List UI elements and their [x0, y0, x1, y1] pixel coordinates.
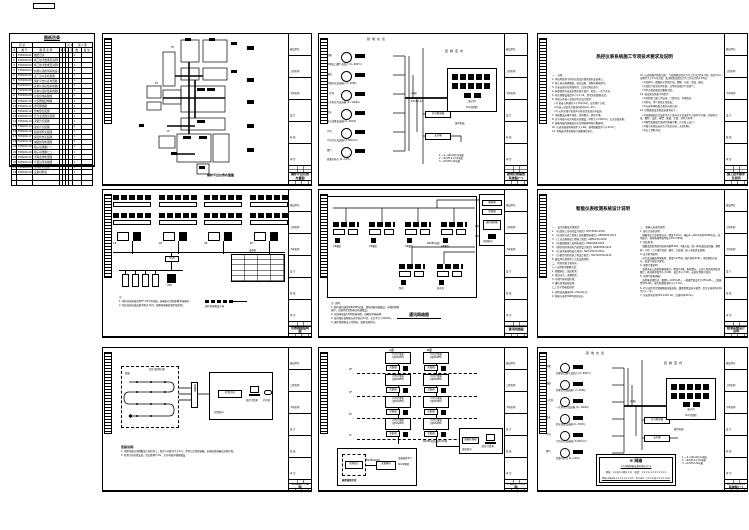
spec1-col2: 12. 仪表管路严密性试验：气动管路试验压力为工作压力的1.5倍，保压5min压… [640, 74, 722, 133]
titleblock-section: 工程名称 [289, 370, 311, 392]
spec-line: (1) 管道公称通径小于76mm时，应采用扩大管； [552, 102, 634, 105]
meter-line-2: (带RS485) [424, 400, 448, 403]
meter-bar [437, 264, 463, 269]
module-frame [204, 220, 242, 225]
instrument-location: 给水 [327, 111, 339, 114]
titleblock-sections: 建设单位工程名称子项名称设 计校 核审 定 [505, 190, 527, 322]
meter-bar [399, 264, 425, 269]
meter-cluster[interactable]: 1#罐区 [331, 222, 361, 252]
isolator-box[interactable]: 信号隔离器 [425, 111, 451, 118]
spare-label: 备用电缆 [674, 428, 684, 431]
titleblock-footer [289, 489, 311, 490]
cabinet-chip-1 [683, 402, 690, 407]
table-row[interactable] [12, 180, 93, 185]
titleblock-footer [289, 334, 311, 336]
hub-box[interactable]: HUB [165, 256, 179, 262]
sheet-catalog[interactable]: 图纸目录 目 录 共 1 册 第 1 册 序图 号图 纸 名 称幅版页张数备 注 [9, 33, 95, 167]
instrument-location: 给水 [546, 416, 558, 419]
meter-box [437, 271, 449, 277]
titleblock-section: 子项名称 [289, 234, 311, 256]
titleblock-section: 工程名称 [289, 56, 311, 78]
spec-line: 2. 智能仪表带HART通讯协议。 [552, 295, 634, 298]
barrier-box[interactable]: 安全栅 [425, 133, 451, 140]
titleblock-section: 审 定 [505, 144, 527, 166]
instrument-item[interactable]: 炉膛 炉膛出口烟气温度计 (0~600℃) [327, 50, 403, 69]
instrument-item[interactable]: 汽包 汽包水位变送器 (±300mm) [327, 126, 403, 145]
titleblock-section: 设 计 [505, 100, 527, 122]
row-name: 锅炉平台仪表布置图 [33, 78, 60, 83]
meter-group[interactable]: 户用计量表 (带RS485) 采集器 [385, 352, 411, 373]
node-chip [443, 238, 448, 243]
clusters-top: 1#罐区 2#罐区 3#罐区 [331, 222, 475, 252]
title-block: 建设单位工程名称子项名称设 计校 核审 定 通讯网络图 [504, 190, 527, 336]
meter-box [399, 271, 411, 277]
cabinet-label: 端子排 [667, 408, 715, 411]
panel-box-1: 隔离栅 [482, 200, 502, 206]
titleblock-section-label: 审 定 [506, 314, 512, 317]
note-line: 注: [119, 296, 195, 299]
floor-label: 2F [349, 413, 352, 416]
spec-line: 3. 仪表安装应在管道吹扫、试压合格后进行。 [552, 86, 634, 89]
plc-cabinet[interactable]: 端子排 PLC控制柜 [447, 68, 497, 112]
meter-cluster[interactable]: 2#罐区 [367, 222, 397, 252]
titleblock-section: 审 定 [725, 300, 747, 322]
riser-column-a: 户用计量表 (带RS485) 采集器 户用计量表 (带RS485) 采集器 [385, 352, 411, 440]
legend-caption: 通讯电缆敷设示意 [205, 305, 224, 308]
instrument-tag-chip [355, 54, 365, 58]
meter-bar [369, 222, 395, 227]
sheet-loop-1[interactable]: 就地仪表 控制室内 炉膛 炉膛出口烟气温度计 ( [318, 33, 528, 186]
riser-body: A座 B座 4F 3F 2F 1F 户用计量表 (带RS485) 采集器 [327, 350, 503, 487]
spec-line: 5. 可燃气体探测器： [640, 275, 722, 278]
titleblock-section: 建设单位 [505, 34, 527, 56]
titleblock-section: 校 核 [725, 436, 747, 458]
titleblock-section-label: 子项名称 [726, 92, 736, 95]
titleblock-footer [505, 489, 527, 490]
titleblock-section-label: 工程名称 [726, 70, 736, 73]
titleblock-section-label: 校 核 [290, 450, 296, 453]
title-block: 建设单位工程名称子项名称设 计校 核审 定 泄漏监测布置图 [288, 348, 311, 490]
titleblock-section: 建设单位 [289, 190, 311, 212]
monitor-box[interactable]: 数据转换器 监控计算机 值班室内 [459, 428, 503, 454]
instrument-tag-chip [573, 450, 583, 454]
titleblock-section-label: 校 核 [726, 292, 732, 295]
spec-line: (3)调节系统投运应先手动后自动，无扰切换。 [640, 125, 722, 128]
page-corner-stamp [33, 3, 55, 9]
detail-inset: 就地表计 RS485(A/B) 采集模块 金属软管2m SC20钢管 典型接线示… [337, 448, 417, 486]
spec-line: (二) 信号传输及处理： [552, 286, 634, 289]
titleblock-section-label: 建设单位 [290, 48, 300, 51]
title-block: 建设单位工程名称子项名称设 计校 核审 定 就地仪表接线系统图(一) [504, 34, 527, 184]
instrument-tag-chip [573, 382, 583, 386]
floor-line [357, 418, 477, 419]
sheet-layout[interactable]: TE PT LT 锅炉平台仪表布置图 建设单位工程名称子项名称设 计校 核审 定… [102, 33, 312, 186]
gateway-chip [224, 232, 232, 241]
spec-line: 4. 流量计量说明： [640, 264, 722, 267]
cluster-label: 泵房 [399, 287, 404, 290]
battery-cell [132, 274, 139, 287]
collector-chip: 采集器 [386, 387, 400, 393]
instrument-symbol [341, 128, 352, 139]
meter-box [414, 271, 424, 277]
meter-line-2: (带RS485) [386, 400, 410, 403]
layout-tag-1: TE [171, 46, 174, 49]
barrier-box[interactable]: 安全栅 [644, 435, 670, 442]
titleblock-section: 子项名称 [289, 392, 311, 414]
spare-label: 备用电缆 [455, 122, 465, 125]
converter-box: 数据转换器 [462, 437, 479, 444]
meter-cluster[interactable]: 泵房 [397, 264, 427, 294]
instrument-item[interactable]: 给水 给水流量变送器 (0~50t/h) [546, 413, 622, 430]
meter-box [369, 229, 381, 235]
titleblock-section: 校 核 [505, 122, 527, 144]
spec-line: 5. 《爆炸危险环境电力装置设计规范》GB50058-2014 [552, 246, 634, 249]
sheet-spec-1[interactable]: 热控仪表系统施工专项技术要求及说明 一、 总则1. 本说明适用于热控仪表及控制系… [537, 33, 748, 186]
group-label: 1# [113, 242, 117, 245]
computer-icon [250, 386, 259, 393]
titleblock-section: 校 核 [289, 122, 311, 144]
spec-line: 7. 《分散型控制系统工程设计规定》HG/T20700-2014 [552, 254, 634, 257]
inset-note-1: 金属软管2m [398, 457, 411, 460]
battery-cell [142, 274, 149, 287]
instrument-item[interactable]: 炉膛 炉膛出口烟气温度计 (0~600℃) [546, 362, 622, 379]
titleblock-section-label: 设 计 [726, 270, 732, 273]
sheet-title: 就地仪表接线系统图(一) [505, 173, 527, 181]
titleblock-section-label: 子项名称 [290, 92, 300, 95]
spec-line: 1. 《石油化工自动化设计规范》SH/T3005-2016 [552, 230, 634, 233]
titleblock-section-label: 建设单位 [726, 204, 736, 207]
sheet-riser[interactable]: A座 B座 4F 3F 2F 1F 户用计量表 (带RS485) 采集器 [318, 347, 528, 492]
titleblock-section-label: 建设单位 [726, 362, 736, 365]
titleblock-section-label: 工程名称 [726, 384, 736, 387]
computer-icon [486, 434, 495, 441]
inset-title: 典型接线示意 [342, 479, 356, 482]
titleblock-section: 审 定 [289, 300, 311, 322]
meter-box [348, 229, 358, 235]
titleblock-section: 建设单位 [289, 34, 311, 56]
titleblock-section-label: 设 计 [726, 428, 732, 431]
titleblock-section-label: 审 定 [506, 472, 512, 475]
meter-box [333, 229, 345, 235]
titleblock-section-label: 工程名称 [290, 384, 300, 387]
instrument-item[interactable]: 给水 给水流量变送器 (0~50t/h) [327, 107, 403, 126]
meter-group[interactable]: 户用计量表 (带RS485) 采集器 [385, 374, 411, 395]
instrument-caption: 汽包水位变送器 (±300mm) [556, 440, 620, 446]
sheet-leak[interactable]: 库区(监测区域) 始端 接线箱 检测主机 监控计算机 打印机 [102, 347, 312, 492]
titleblock-section-label: 校 核 [726, 450, 732, 453]
row-name: 就地仪表接线系统图(一) [33, 83, 60, 88]
spec-line: 储罐液位计选用雷达式，精度±3mm，输出4~20mA并带HART协议，就地显示，… [640, 234, 722, 240]
row-code [16, 180, 32, 185]
sheet-loop-2[interactable]: 就地仪表 控制室内 炉膛 炉膛出口烟气温度计 (0~600℃) [537, 347, 748, 492]
layout-body: TE PT LT 锅炉平台仪表布置图 [111, 36, 287, 181]
cabinet-sublabel: PLC控制柜 [667, 414, 715, 417]
instrument-location: 烟道 [327, 73, 339, 76]
titleblock-section: 建设单位 [725, 34, 747, 56]
instrument-item[interactable]: 一次风 一次风压力变送器 (0~10kPa) [327, 88, 403, 107]
layout-tag-2: PT [155, 82, 158, 85]
spec-line: 8. 建设单位提供的工艺及设备资料。 [552, 258, 634, 261]
cable-count-label: (2根) [411, 92, 417, 95]
titleblock-section: 审 定 [505, 458, 527, 480]
bus-run [436, 446, 459, 447]
floor-label: 3F [349, 391, 352, 394]
spec-line: 三、 智能仪表选型说明： [640, 226, 722, 229]
module-frame [159, 220, 197, 225]
spec-line: 2. 《自动化仪表工程施工及质量验收规范》GB50093-2013 [552, 234, 634, 237]
spec2-title: 智能仪表检测系统设计说明 [576, 206, 630, 212]
meter-box: 户用计量表 (带RS485) [385, 418, 411, 430]
note-line: 1. 测漏电缆沿沟槽敷设于防护层上，固定卡间距不大于1m，不得与尖锐物接触，末端… [121, 450, 271, 453]
titleblock-section-label: 工程名称 [506, 70, 516, 73]
instrument-symbol [341, 52, 352, 63]
equipment-table-title: 设备表 [249, 249, 256, 252]
instrument-caption: 炉膛出口烟气温度计 (0~600℃) [556, 372, 620, 378]
instrument-tag-chip [355, 73, 365, 77]
instrument-item[interactable]: 汽包 汽包水位变送器 (±300mm) [546, 430, 622, 447]
titleblock-section: 校 核 [725, 122, 747, 144]
spec2-body: 智能仪表检测系统设计说明 一、 设计依据及采用规范：1. 《石油化工自动化设计规… [546, 192, 723, 333]
meter-group[interactable]: 户用计量表 (带RS485) 采集器 [423, 396, 449, 417]
titleblock-section-label: 审 定 [726, 472, 732, 475]
titleblock-section-label: 工程名称 [290, 226, 300, 229]
detector-host-box[interactable]: 检测主机 [218, 390, 242, 398]
meter-box [441, 229, 453, 235]
group-label: 2# [159, 242, 163, 245]
meter-group[interactable]: 户用计量表 (带RS485) 采集器 [423, 418, 449, 439]
spec-line: (1)试验时，缓慢升压至规定值，观察、记录、复核、确认； [640, 81, 722, 84]
meter-line-2: (带RS485) [386, 422, 410, 425]
meter-cluster[interactable]: 4#罐区 [439, 222, 469, 252]
meter-bar [441, 222, 467, 227]
titleblock-section: 设 计 [289, 100, 311, 122]
tree-branch [119, 270, 183, 271]
sheet-spec-2[interactable]: 智能仪表检测系统设计说明 一、 设计依据及采用规范：1. 《石油化工自动化设计规… [537, 189, 748, 338]
plc-cabinet[interactable]: 端子排 PLC控制柜 [666, 378, 716, 420]
catalog-body: 1 F2816K-01 图纸目录 1 2 F2816K-02 施 [12, 53, 93, 185]
instrument-item[interactable]: 烟道 炉膛负压变送器 (-2~2kPa) [327, 69, 403, 88]
titleblock-section-label: 设 计 [506, 270, 512, 273]
meter-cluster[interactable]: 装车区 [435, 264, 465, 294]
meter-box [456, 229, 466, 235]
spec-line: 6. 测温元件插入深度应符合设计要求： [552, 98, 634, 101]
module-bar [250, 213, 288, 218]
instrument-caption: 给水流量变送器 (0~50t/h) [556, 423, 620, 429]
titleblock-footer [725, 489, 747, 490]
collector-chip: 采集器 [386, 409, 400, 415]
junction-strip: 接线箱 [191, 382, 198, 408]
titleblock-section: 设 计 [725, 256, 747, 278]
titleblock-section: 设 计 [505, 256, 527, 278]
loop-legend: 1 —4~20mA信号电缆2 —RVVP-2×1.0电缆3 —KVVP2-22电… [682, 456, 724, 466]
catalog-table-wrap: 目 录 共 1 册 第 1 册 序图 号图 纸 名 称幅版页张数备 注 1 F2… [11, 42, 93, 164]
titleblock-section: 子项名称 [725, 392, 747, 414]
titleblock-footer [725, 334, 747, 336]
titleblock-section: 建设单位 [725, 190, 747, 212]
instrument-location: 汽包 [546, 433, 558, 436]
cabinet-chip-1 [464, 93, 471, 98]
collector-chip: 采集器 [424, 431, 438, 437]
instrument-tag-chip [573, 365, 583, 369]
titleblock-section: 审 定 [725, 458, 747, 480]
title-block: 建设单位工程名称子项名称设 计校 核审 定 锅炉平台仪表布置图 [288, 34, 311, 184]
instrument-column: 炉膛 炉膛出口烟气温度计 (0~600℃) 烟道 炉膛负压变送器 (-2~2kP… [327, 50, 403, 164]
instrument-column: 炉膛 炉膛出口烟气温度计 (0~600℃) 烟道 炉膛负压变送器 (-2~2kP… [546, 362, 622, 464]
titleblock-section-label: 工程名称 [506, 226, 516, 229]
row-name: 施工技术要求及说明(二) [33, 63, 60, 68]
module-bar [159, 195, 197, 200]
clusters-mid: 泵房 装车区 [397, 264, 467, 294]
spec-line: (2) 插入深度宜为管道内径的1/2~2/3； [552, 106, 634, 109]
titleblock-section-label: 审 定 [726, 158, 732, 161]
group-label: 3# [204, 242, 208, 245]
gateway-chip [270, 232, 278, 241]
meter-group[interactable]: 户用计量表 (带RS485) 采集器 [385, 418, 411, 439]
node-chip [407, 238, 412, 243]
note-line: 4. 通讯管理机设于控制室，双路电源供电。 [331, 321, 401, 324]
meter-line-2: (带RS485) [424, 356, 448, 359]
titleblock-section: 工程名称 [505, 370, 527, 392]
row-qty [72, 180, 81, 185]
node-dot [441, 388, 446, 393]
spec-line: 12. 仪表管路严密性试验：气动管路试验压力为工作压力的1.5倍，保压5min压… [640, 74, 722, 80]
node-dot [441, 432, 446, 437]
room-label: 值班室内 [462, 448, 472, 451]
device-group[interactable]: 3# [204, 194, 244, 254]
instrument-location: 一次风 [546, 399, 558, 402]
floor-label: 1F [349, 434, 352, 437]
module-frame [250, 202, 288, 207]
meter-box: 户用计量表 (带RS485) [385, 396, 411, 408]
device-group[interactable]: 1# [113, 194, 153, 254]
sheet-network-1[interactable]: 1# 2# [102, 189, 312, 338]
titleblock-section-label: 子项名称 [506, 248, 516, 251]
spec-line: (1)回路联校综合误差不大于各环节允许误差平方和的平方根，并做好记录：量程、误差… [640, 114, 722, 120]
meter-box [452, 271, 462, 277]
instrument-item[interactable]: 烟气 氧量分析仪 (0~10%) [327, 145, 403, 164]
titleblock-section-label: 设 计 [290, 114, 296, 117]
module-bar [159, 213, 197, 218]
spec-line: 6. 信号远传至控制室数据采集系统，重要参数设声光报警，历史记录保存时间不少于一… [640, 287, 722, 293]
node-chip [335, 238, 340, 243]
title-block: 建设单位工程名称子项名称设 计校 核审 定 施工技术要求及说明 [724, 34, 747, 184]
catalog-table[interactable]: 目 录 共 1 册 第 1 册 序图 号图 纸 名 称幅版页张数备 注 1 F2… [11, 42, 93, 186]
titleblock-footer [289, 181, 311, 184]
instrument-location: 炉膛 [546, 365, 558, 368]
meter-box: 户用计量表 (带RS485) [385, 374, 411, 386]
device-group[interactable]: 2# [159, 194, 199, 254]
instrument-tag-chip [355, 92, 365, 96]
note-line: 2. 检测主机挂墙安装，底边距地1.5m，信号电缆穿钢管敷设。 [121, 454, 271, 457]
titleblock-section-label: 建设单位 [290, 362, 300, 365]
titleblock-section-label: 审 定 [726, 314, 732, 317]
sheet-title: 施工技术要求及说明 [725, 173, 747, 181]
inset-module-box: 采集模块 [376, 461, 396, 470]
module-bar [204, 195, 242, 200]
meter-bar [405, 222, 431, 227]
titleblock-section: 校 核 [505, 436, 527, 458]
ups-chip [167, 274, 176, 283]
row-name [33, 180, 60, 185]
titleblock-section-label: 校 核 [506, 136, 512, 139]
instrument-item[interactable]: 烟道 炉膛负压变送器 (-2~2kPa) [546, 379, 622, 396]
meter-box [405, 229, 417, 235]
module-frame [113, 220, 151, 225]
meter-line-2: (带RS485) [424, 422, 448, 425]
control-panel[interactable]: 隔离栅 转换器 通讯管理机 控制室内 [479, 194, 505, 246]
spec-line: 4. 《电缆线路施工及验收规范》GB50168-2018 [552, 242, 634, 245]
control-room-box: 检测主机 监控计算机 打印机 控制室内 [209, 372, 273, 420]
meter-box [420, 229, 430, 235]
titleblock-sections: 建设单位工程名称子项名称设 计校 核审 定 [289, 190, 311, 322]
titleblock-footer [505, 334, 527, 336]
loop1-body: 就地仪表 控制室内 炉膛 炉膛出口烟气温度计 ( [327, 36, 503, 181]
row-name: 智能仪表检测系统设计说明 [33, 68, 60, 73]
computer-label: 监控计算机 [482, 445, 494, 448]
titleblock-section-label: 子项名称 [506, 406, 516, 409]
instrument-caption: 氧量分析仪 (0~10%) [327, 158, 403, 164]
titleblock-section: 子项名称 [505, 392, 527, 414]
legend-dash-bar [205, 300, 233, 303]
legend-entry: 3 —KVVP2-22电缆 [682, 462, 724, 465]
equipment-table [231, 254, 285, 282]
panel-chip [488, 234, 496, 239]
instrument-symbol [341, 109, 352, 120]
revision-table [289, 166, 311, 173]
spec-line: 3. 压力检测说明： [640, 253, 722, 256]
titleblock-section: 工程名称 [725, 370, 747, 392]
layout-drawing [111, 36, 289, 183]
spec-line: 一、 总则 [552, 74, 634, 77]
module-bar [113, 213, 151, 218]
device-group[interactable]: 4# [250, 194, 290, 254]
titleblock-section-label: 设 计 [506, 114, 512, 117]
spec-line: 1. 液位计选型说明： [640, 230, 722, 233]
cabinet-sublabel: PLC控制柜 [448, 106, 496, 109]
floor-label: 4F [349, 368, 352, 371]
gateway-chip [133, 232, 141, 241]
comm-manager-box: 通讯管理机 [483, 220, 501, 230]
net2-notes: 注: 说明1. 图中通讯线采用RS485总线、双绞屏蔽电缆敷设，穿镀锌钢管保护，… [331, 302, 401, 325]
layout-tag-3: LT [167, 130, 169, 133]
meter-group[interactable]: 户用计量表 (带RS485) 采集器 [423, 374, 449, 395]
meter-group[interactable]: 户用计量表 (带RS485) 采集器 [423, 352, 449, 373]
spec-line: 5. 导压管敷设坡度不小于1:12，拐弯处应圆滑过渡。 [552, 94, 634, 97]
instrument-item[interactable]: 一次风 一次风压力变送器 (0~10kPa) [546, 396, 622, 413]
meter-line-2: (带RS485) [386, 356, 410, 359]
titleblock-section-label: 校 核 [506, 450, 512, 453]
cluster-label: 3#罐区 [405, 245, 413, 248]
titleblock-section-label: 设 计 [290, 428, 296, 431]
row-name: 就地仪表接线系统图(二) [33, 88, 60, 93]
meter-cluster[interactable]: 3#罐区 [403, 222, 433, 252]
titleblock-section: 设 计 [725, 414, 747, 436]
titleblock-section: 子项名称 [725, 234, 747, 256]
node-dot [403, 366, 408, 371]
revision-table [505, 166, 527, 173]
terminal-row-2 [671, 393, 711, 399]
vendor-name: ××科技网络设备有限公司 ⑤ [597, 465, 675, 468]
titleblock-section-label: 审 定 [290, 314, 296, 317]
titleblock-sections: 建设单位工程名称子项名称设 计校 核审 定 [289, 34, 311, 166]
instrument-location: 一次风 [327, 92, 339, 95]
meter-group[interactable]: 户用计量表 (带RS485) 采集器 [385, 396, 411, 417]
collector-chip: 采集器 [424, 387, 438, 393]
sheet-network-2[interactable]: 1#罐区 2#罐区 3#罐区 [318, 189, 528, 338]
instrument-location: 烟气 [327, 149, 339, 152]
titleblock-section: 子项名称 [505, 234, 527, 256]
instrument-symbol [341, 71, 352, 82]
